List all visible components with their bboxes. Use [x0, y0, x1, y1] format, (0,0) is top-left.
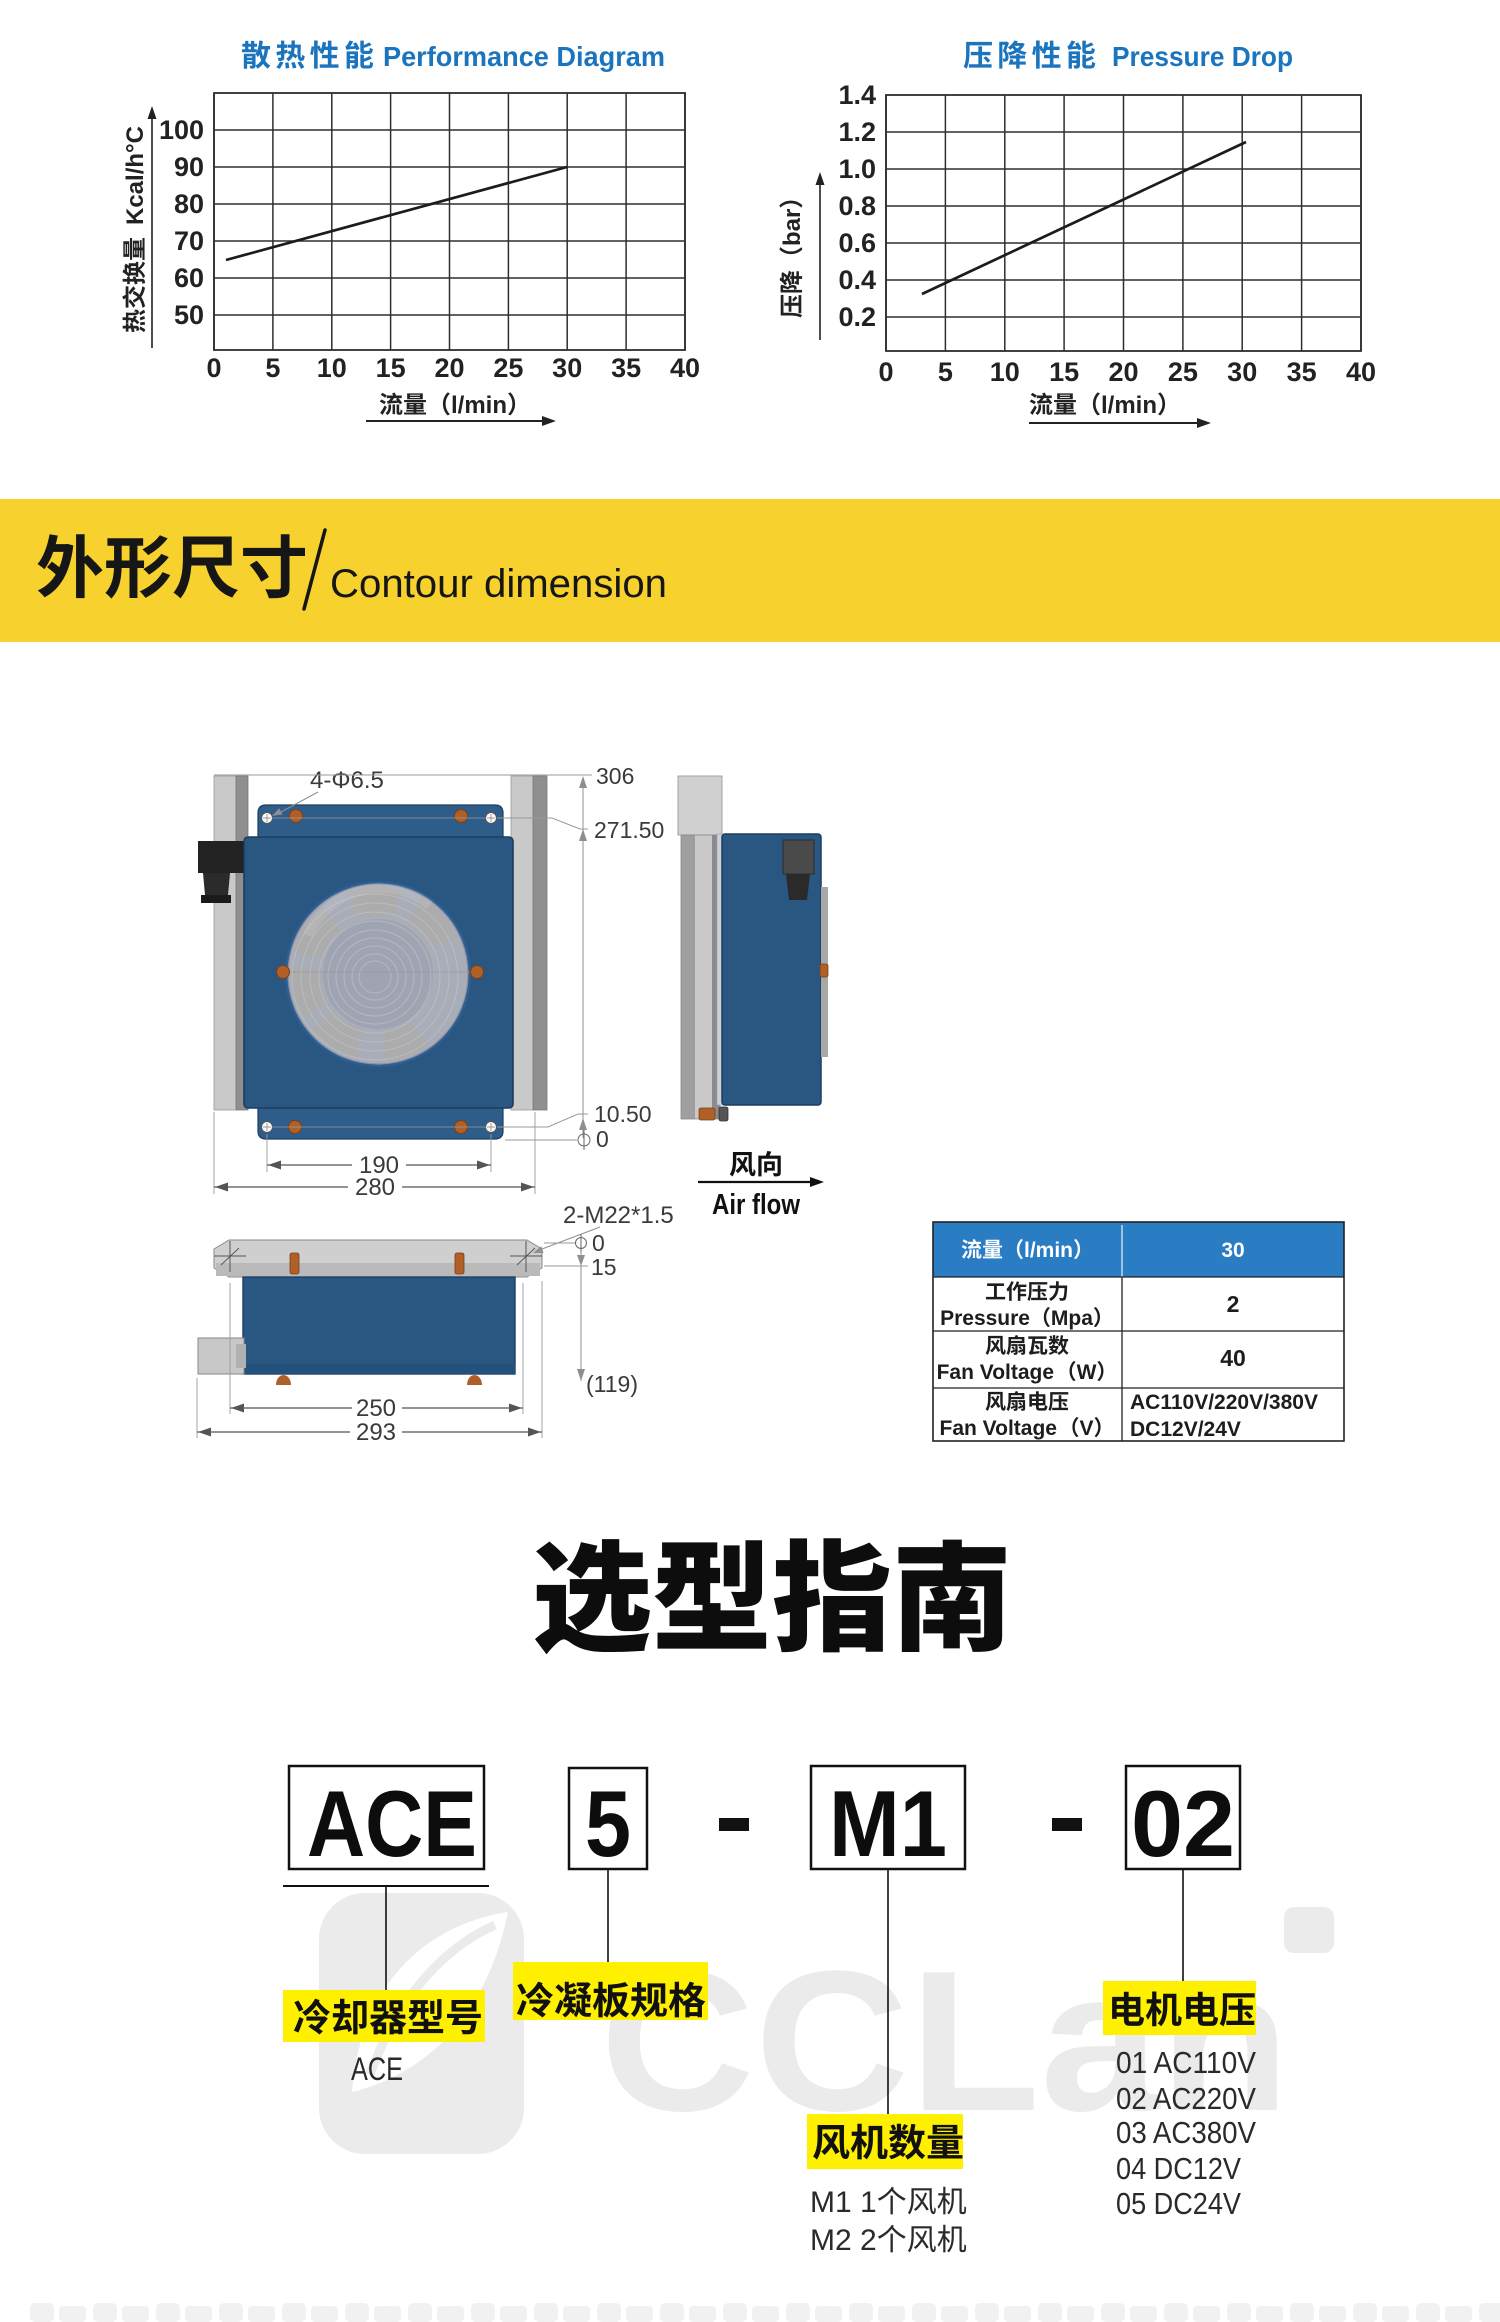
svg-text:30: 30 — [1221, 1239, 1244, 1262]
svg-text:Mpa: Mpa — [1051, 1307, 1093, 1330]
svg-text:35: 35 — [1287, 357, 1317, 387]
svg-text:100: 100 — [159, 115, 204, 145]
svg-text:2-M22*1.5: 2-M22*1.5 — [563, 1202, 674, 1229]
svg-text:0.8: 0.8 — [838, 191, 876, 221]
svg-text:40: 40 — [1220, 1345, 1246, 1371]
svg-text:1.4: 1.4 — [838, 80, 876, 110]
svg-text:5: 5 — [265, 353, 280, 383]
svg-text:0: 0 — [206, 353, 221, 383]
svg-text:20: 20 — [434, 353, 464, 383]
svg-text:M1: M1 — [829, 1771, 947, 1876]
svg-text:20: 20 — [1108, 357, 1138, 387]
svg-text:35: 35 — [611, 353, 641, 383]
svg-text:0: 0 — [596, 1126, 609, 1152]
svg-text:5: 5 — [938, 357, 953, 387]
svg-text:Performance Diagram: Performance Diagram — [383, 41, 665, 72]
svg-text:Kcal/h°C: Kcal/h°C — [122, 126, 149, 225]
svg-text:25: 25 — [493, 353, 523, 383]
svg-text:01 AC110V: 01 AC110V — [1116, 2045, 1256, 2080]
svg-text:0.2: 0.2 — [838, 302, 876, 332]
svg-text:5: 5 — [585, 1771, 631, 1876]
svg-text:DC12V/24V: DC12V/24V — [1130, 1418, 1241, 1441]
svg-text:1.2: 1.2 — [838, 117, 876, 147]
svg-text:04 DC12V: 04 DC12V — [1116, 2151, 1241, 2186]
svg-text:0: 0 — [592, 1230, 605, 1256]
svg-text:15: 15 — [376, 353, 406, 383]
svg-text:4-Φ6.5: 4-Φ6.5 — [310, 767, 384, 794]
svg-text:293: 293 — [356, 1419, 396, 1446]
svg-text:250: 250 — [356, 1395, 396, 1422]
svg-text:W: W — [1077, 1361, 1097, 1384]
svg-text:(119): (119) — [586, 1371, 638, 1397]
svg-text:1.0: 1.0 — [838, 154, 876, 184]
svg-text:AC110V/220V/380V: AC110V/220V/380V — [1130, 1391, 1318, 1414]
svg-text:05 DC24V: 05 DC24V — [1116, 2186, 1241, 2221]
svg-text:40: 40 — [670, 353, 700, 383]
svg-text:Air flow: Air flow — [712, 1189, 800, 1221]
svg-text:ACE: ACE — [307, 1771, 477, 1876]
svg-text:M2 2: M2 2 — [810, 2224, 877, 2257]
svg-text:l/min: l/min — [1101, 392, 1157, 419]
svg-text:2: 2 — [1227, 1291, 1240, 1317]
svg-text:Fan Voltage: Fan Voltage — [940, 1417, 1057, 1440]
svg-text:25: 25 — [1168, 357, 1198, 387]
svg-text:90: 90 — [174, 152, 204, 182]
svg-text:30: 30 — [552, 353, 582, 383]
svg-text:280: 280 — [355, 1174, 395, 1201]
svg-text:V: V — [1080, 1417, 1094, 1440]
svg-text:l/min: l/min — [1024, 1239, 1073, 1262]
svg-text:80: 80 — [174, 189, 204, 219]
svg-text:70: 70 — [174, 226, 204, 256]
svg-text:Contour dimension: Contour dimension — [330, 562, 667, 606]
svg-text:0.6: 0.6 — [838, 228, 876, 258]
svg-text:0: 0 — [878, 357, 893, 387]
svg-text:271.50: 271.50 — [594, 817, 664, 843]
svg-text:M1 1: M1 1 — [810, 2186, 877, 2219]
svg-text:02 AC220V: 02 AC220V — [1116, 2081, 1256, 2116]
svg-text:bar: bar — [779, 209, 806, 246]
svg-text:l/min: l/min — [451, 392, 507, 419]
svg-text:03 AC380V: 03 AC380V — [1116, 2115, 1256, 2150]
svg-text:Fan Voltage: Fan Voltage — [937, 1361, 1054, 1384]
svg-text:15: 15 — [591, 1254, 617, 1280]
svg-text:Pressure Drop: Pressure Drop — [1112, 41, 1293, 72]
svg-text:15: 15 — [1049, 357, 1079, 387]
svg-text:Pressure: Pressure — [940, 1307, 1030, 1330]
svg-text:10: 10 — [990, 357, 1020, 387]
svg-text:60: 60 — [174, 263, 204, 293]
svg-text:40: 40 — [1346, 357, 1376, 387]
svg-text:306: 306 — [596, 763, 634, 789]
svg-text:ACE: ACE — [351, 2051, 403, 2087]
svg-text:50: 50 — [174, 300, 204, 330]
svg-text:10.50: 10.50 — [594, 1101, 652, 1127]
svg-text:0.4: 0.4 — [838, 265, 876, 295]
svg-text:02: 02 — [1131, 1771, 1235, 1876]
svg-text:30: 30 — [1227, 357, 1257, 387]
svg-text:10: 10 — [317, 353, 347, 383]
